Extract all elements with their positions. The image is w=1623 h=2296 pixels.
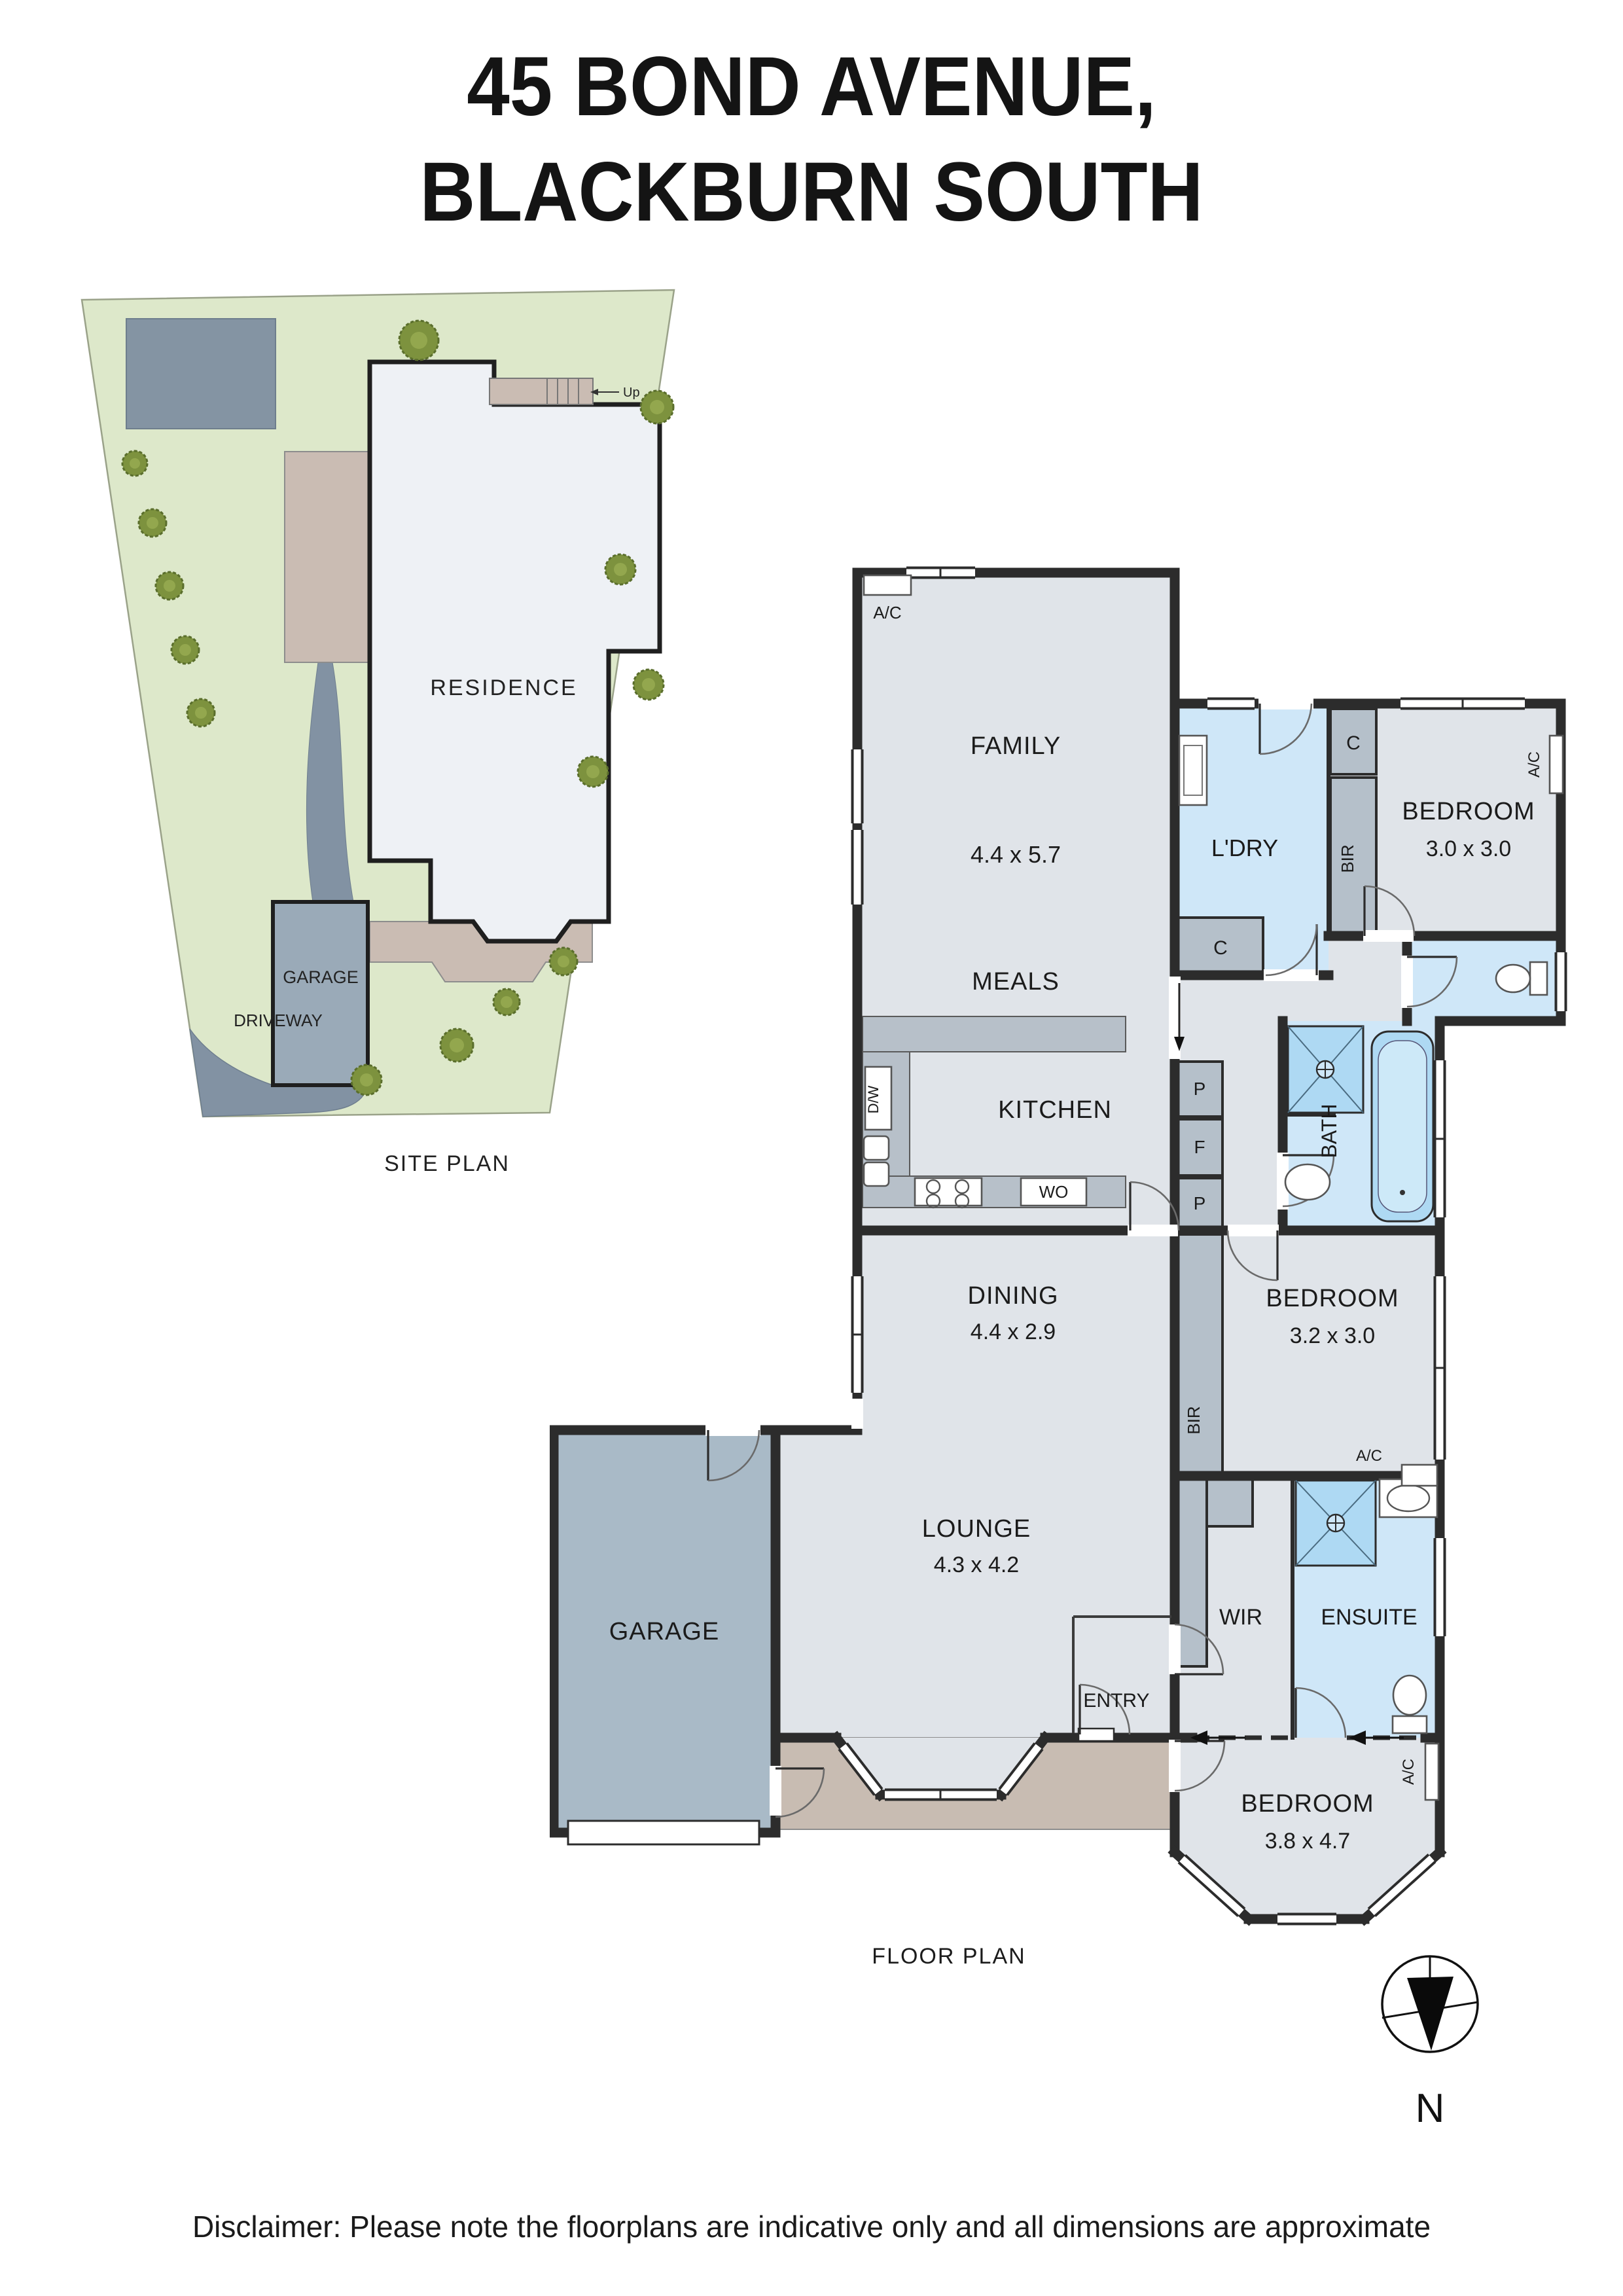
bir-label: BIR (1184, 1406, 1204, 1434)
room-dims-bedroom2: 3.2 x 3.0 (1290, 1323, 1375, 1348)
compass-north-label: N (1416, 2086, 1445, 2131)
kitchen-sink (864, 1162, 889, 1186)
compass-north-icon: N (1361, 1937, 1505, 2134)
tree-icon (399, 321, 438, 360)
kitchen-sink (864, 1136, 889, 1160)
tree-icon (351, 1065, 382, 1095)
pantry-label: P (1194, 1079, 1206, 1099)
room-dims-bedroom3: 3.8 x 4.7 (1265, 1829, 1350, 1854)
title-line-1: 45 BOND AVENUE, (65, 34, 1558, 139)
room-label-ensuite: ENSUITE (1321, 1605, 1417, 1630)
room-label-lounge: LOUNGE (922, 1515, 1031, 1543)
room-dims-family: 4.4 x 5.7 (971, 841, 1061, 868)
ac-unit (1550, 736, 1563, 793)
fridge-label: F (1194, 1137, 1205, 1157)
room-label-dining: DINING (968, 1282, 1059, 1310)
tree-icon (440, 1029, 473, 1062)
kitchen-bench (863, 1016, 1126, 1052)
wall-oven-label: WO (1039, 1182, 1069, 1202)
room-dims-lounge: 4.3 x 4.2 (934, 1552, 1019, 1577)
tree-icon (171, 636, 199, 664)
ac-label: A/C (873, 603, 901, 622)
cupboard-label: C (1346, 732, 1361, 754)
toilet (1393, 1676, 1427, 1733)
wir-shelving (1207, 1479, 1253, 1526)
shower (1296, 1480, 1376, 1566)
ac-label: A/C (1525, 751, 1543, 778)
room-label-bath: BATH (1317, 1104, 1341, 1158)
bir-label: BIR (1338, 844, 1357, 872)
bathtub (1372, 1031, 1433, 1221)
tree-icon (156, 572, 183, 600)
disclaimer-text: Disclaimer: Please note the floorplans a… (0, 2209, 1623, 2244)
site-driveway-label: DRIVEWAY (234, 1011, 323, 1030)
property-address-title: 45 BOND AVENUE, BLACKBURN SOUTH (0, 34, 1623, 245)
stairs-up-label: Up (623, 386, 640, 400)
room-label-bedroom1: BEDROOM (1402, 798, 1535, 825)
tree-icon (187, 699, 215, 726)
shower (1288, 1026, 1363, 1113)
room-label-laundry: L'DRY (1211, 834, 1278, 861)
room-label-bedroom3: BEDROOM (1241, 1790, 1374, 1818)
built-in-robe (1177, 1234, 1222, 1473)
site-plan-caption: SITE PLAN (384, 1151, 510, 1176)
vanity-basin (1285, 1164, 1330, 1200)
title-line-2: BLACKBURN SOUTH (65, 139, 1558, 245)
tree-icon (122, 451, 147, 476)
room-label-wir: WIR (1219, 1605, 1262, 1630)
site-garage (273, 902, 368, 1085)
cooktop (915, 1178, 982, 1206)
room-label-garage: GARAGE (609, 1618, 720, 1645)
ac-unit (864, 575, 911, 595)
site-shed (126, 319, 276, 429)
floor-plan: FAMILY 4.4 x 5.7 MEALS KITCHEN DINING 4.… (550, 563, 1577, 1977)
cupboard-label: C (1213, 937, 1228, 959)
pantry-label: P (1194, 1193, 1206, 1213)
floor-plan-caption: FLOOR PLAN (872, 1944, 1026, 1969)
tree-icon (641, 391, 673, 423)
toilet (1496, 962, 1547, 995)
room-dims-bedroom1: 3.0 x 3.0 (1426, 836, 1511, 861)
dishwasher-label: D/W (865, 1085, 882, 1113)
ac-unit (1425, 1744, 1438, 1800)
room-label-family: FAMILY (971, 732, 1061, 760)
site-garage-label: GARAGE (283, 967, 359, 987)
room-dims-dining: 4.4 x 2.9 (971, 1319, 1056, 1344)
tree-icon (493, 989, 520, 1015)
ac-unit (1402, 1465, 1437, 1486)
wir-shelving (1177, 1479, 1207, 1666)
ac-label: A/C (1356, 1447, 1382, 1465)
room-label-entry: ENTRY (1083, 1690, 1149, 1712)
front-door (1079, 1729, 1114, 1741)
room-label-bedroom2: BEDROOM (1266, 1285, 1399, 1312)
room-label-kitchen: KITCHEN (998, 1096, 1112, 1124)
tree-icon (139, 509, 166, 537)
room-label-meals: MEALS (972, 968, 1060, 996)
ac-label: A/C (1400, 1759, 1418, 1785)
garage-door (568, 1821, 759, 1844)
